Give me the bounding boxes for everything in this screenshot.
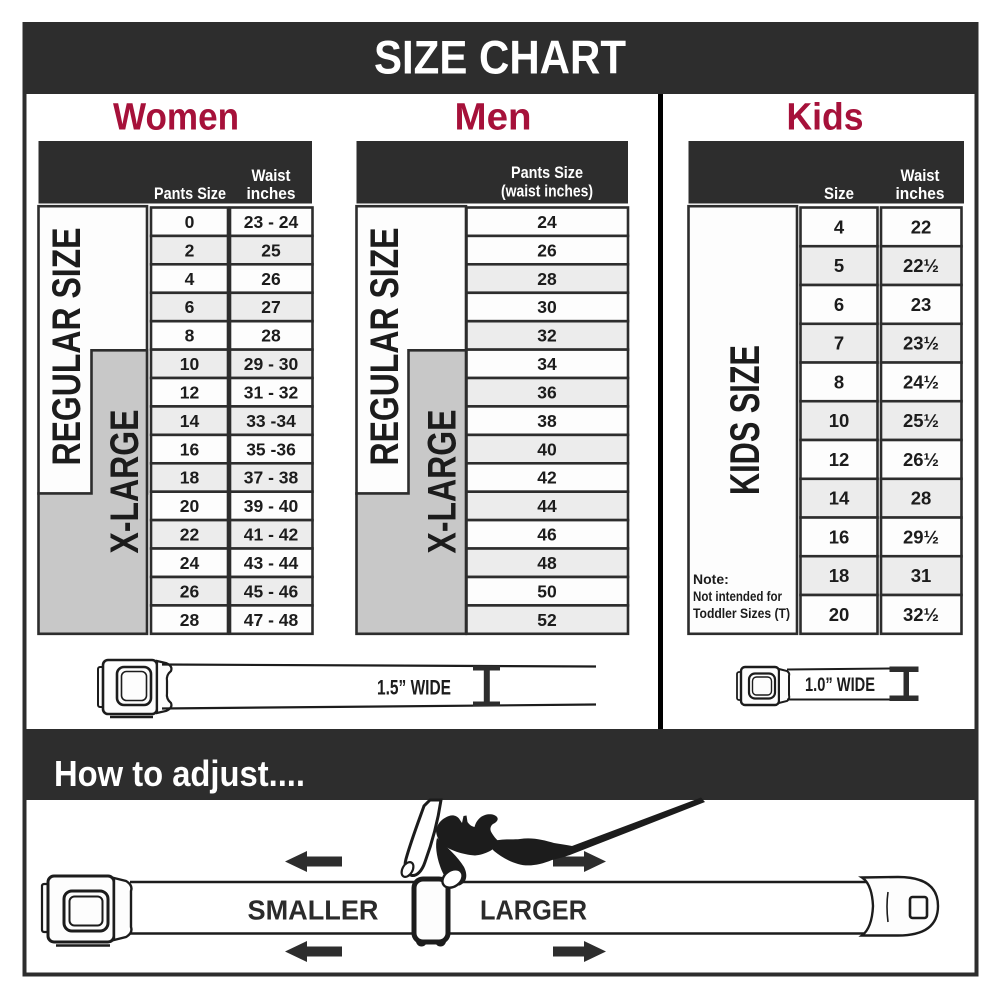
svg-text:24: 24: [537, 212, 557, 232]
svg-text:1.5” WIDE: 1.5” WIDE: [377, 677, 451, 700]
svg-text:Men: Men: [455, 97, 532, 139]
svg-text:44: 44: [537, 496, 557, 516]
svg-text:23: 23: [911, 294, 932, 315]
svg-text:26: 26: [261, 269, 281, 289]
svg-text:45 - 46: 45 - 46: [244, 581, 299, 601]
svg-text:14: 14: [180, 411, 200, 431]
svg-text:10: 10: [180, 354, 200, 374]
svg-text:52: 52: [537, 610, 557, 630]
svg-text:22½: 22½: [903, 255, 939, 276]
svg-text:38: 38: [537, 411, 557, 431]
svg-text:8: 8: [834, 371, 844, 392]
svg-text:23 - 24: 23 - 24: [244, 212, 299, 232]
svg-text:Kids: Kids: [787, 97, 864, 139]
svg-text:6: 6: [834, 294, 844, 315]
svg-text:22: 22: [911, 216, 932, 237]
svg-text:39 - 40: 39 - 40: [244, 496, 299, 516]
svg-text:1.0” WIDE: 1.0” WIDE: [805, 675, 875, 696]
svg-text:LARGER: LARGER: [480, 895, 587, 926]
svg-text:0: 0: [185, 212, 195, 232]
svg-text:inches: inches: [247, 184, 296, 203]
svg-text:50: 50: [537, 581, 557, 601]
svg-text:40: 40: [537, 439, 557, 459]
svg-text:25½: 25½: [903, 410, 939, 431]
svg-text:5: 5: [834, 255, 844, 276]
svg-text:7: 7: [834, 333, 844, 354]
svg-text:18: 18: [180, 468, 200, 488]
svg-text:Pants Size: Pants Size: [154, 184, 226, 203]
svg-text:Not intended for: Not intended for: [693, 588, 782, 604]
svg-text:X-LARGE: X-LARGE: [421, 410, 465, 554]
svg-text:31: 31: [911, 565, 932, 586]
svg-text:43 - 44: 43 - 44: [244, 553, 299, 573]
svg-text:32: 32: [537, 326, 557, 346]
svg-text:REGULAR SIZE: REGULAR SIZE: [363, 228, 407, 466]
svg-text:29 - 30: 29 - 30: [244, 354, 299, 374]
svg-text:23½: 23½: [903, 333, 939, 354]
svg-text:SIZE CHART: SIZE CHART: [374, 31, 626, 84]
svg-text:REGULAR SIZE: REGULAR SIZE: [45, 228, 89, 466]
svg-text:32½: 32½: [903, 604, 939, 625]
svg-text:18: 18: [829, 565, 850, 586]
svg-text:24: 24: [180, 553, 200, 573]
svg-text:28: 28: [261, 326, 281, 346]
svg-text:4: 4: [834, 216, 845, 237]
svg-text:47 - 48: 47 - 48: [244, 610, 299, 630]
svg-text:16: 16: [829, 526, 850, 547]
svg-text:20: 20: [180, 496, 200, 516]
svg-text:X-LARGE: X-LARGE: [103, 410, 147, 554]
svg-text:28: 28: [180, 610, 200, 630]
svg-text:22: 22: [180, 525, 200, 545]
svg-text:34: 34: [537, 354, 557, 374]
svg-text:42: 42: [537, 468, 557, 488]
svg-text:26: 26: [537, 240, 557, 260]
svg-text:16: 16: [180, 439, 200, 459]
svg-text:6: 6: [185, 297, 195, 317]
svg-text:Women: Women: [113, 97, 239, 139]
svg-text:27: 27: [261, 297, 280, 317]
svg-text:28: 28: [911, 488, 932, 509]
svg-text:KIDS SIZE: KIDS SIZE: [721, 345, 768, 495]
svg-text:33 -34: 33 -34: [246, 411, 296, 431]
svg-text:29½: 29½: [903, 526, 939, 547]
svg-text:31 - 32: 31 - 32: [244, 382, 299, 402]
svg-text:Pants Size: Pants Size: [511, 163, 583, 182]
svg-text:inches: inches: [896, 184, 945, 203]
svg-text:20: 20: [829, 604, 850, 625]
svg-text:12: 12: [180, 382, 200, 402]
svg-text:28: 28: [537, 269, 557, 289]
svg-text:How to adjust....: How to adjust....: [54, 753, 305, 794]
svg-text:12: 12: [829, 449, 850, 470]
svg-text:Size: Size: [824, 184, 854, 203]
svg-text:25: 25: [261, 240, 281, 260]
svg-text:26: 26: [180, 581, 200, 601]
svg-text:24½: 24½: [903, 371, 939, 392]
svg-text:41 - 42: 41 - 42: [244, 525, 299, 545]
svg-text:(waist inches): (waist inches): [501, 182, 593, 201]
svg-text:2: 2: [185, 240, 195, 260]
svg-text:Note:: Note:: [693, 571, 729, 587]
svg-text:35 -36: 35 -36: [246, 439, 296, 459]
svg-text:Waist: Waist: [901, 166, 940, 185]
svg-text:10: 10: [829, 410, 850, 431]
svg-text:14: 14: [829, 488, 850, 509]
svg-text:46: 46: [537, 525, 557, 545]
svg-text:48: 48: [537, 553, 557, 573]
svg-text:26½: 26½: [903, 449, 939, 470]
svg-text:30: 30: [537, 297, 557, 317]
svg-text:37 - 38: 37 - 38: [244, 468, 299, 488]
svg-text:Toddler Sizes (T): Toddler Sizes (T): [693, 605, 790, 621]
svg-text:8: 8: [185, 326, 195, 346]
svg-text:4: 4: [185, 269, 195, 289]
svg-text:Waist: Waist: [252, 166, 291, 185]
svg-text:SMALLER: SMALLER: [248, 895, 379, 926]
svg-text:36: 36: [537, 382, 557, 402]
